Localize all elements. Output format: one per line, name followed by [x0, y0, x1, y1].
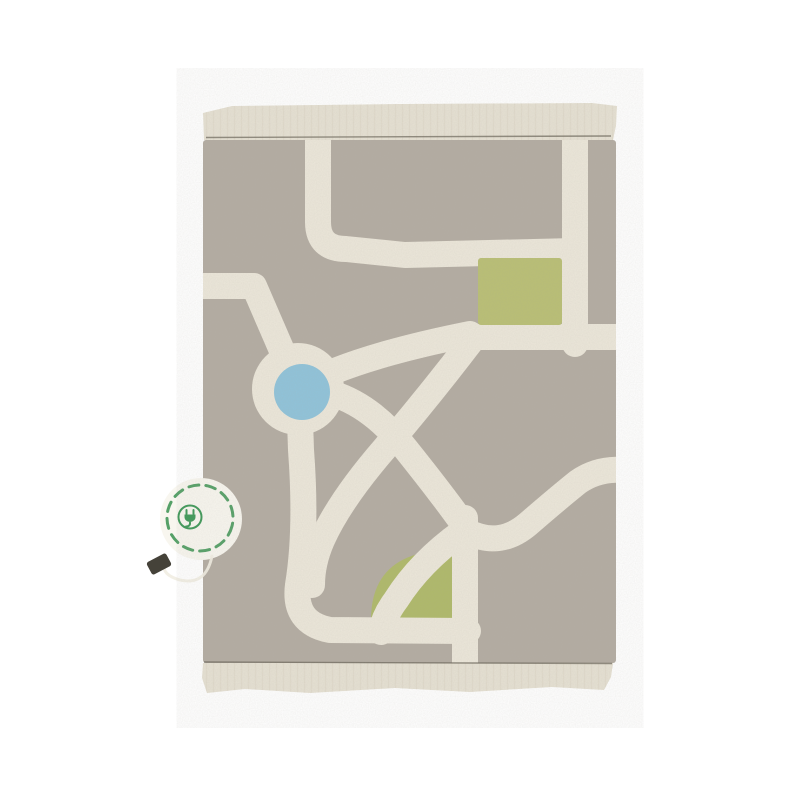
- fabric-texture-overlay: [198, 98, 622, 698]
- tag-body: [146, 553, 172, 576]
- play-rug-illustration: Top view of a beige washable children's …: [0, 0, 800, 800]
- product-photo: Top view of a beige washable children's …: [0, 0, 800, 800]
- rug: [146, 98, 624, 698]
